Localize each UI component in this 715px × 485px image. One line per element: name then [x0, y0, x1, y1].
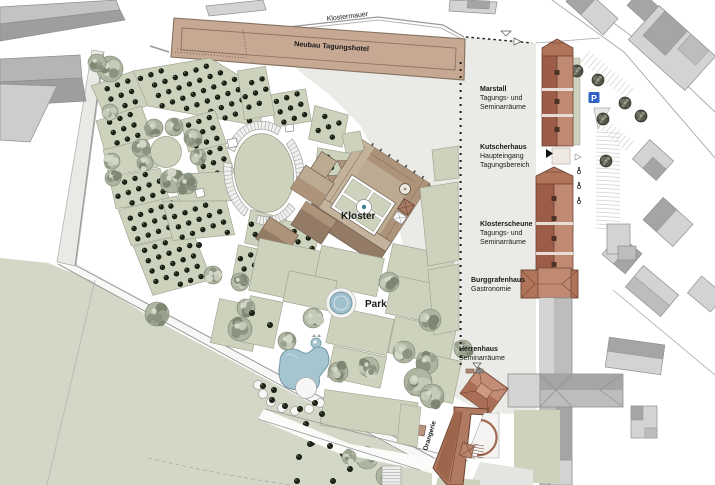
svg-text:Marstall: Marstall [480, 86, 507, 93]
svg-text:Klosterscheune: Klosterscheune [480, 221, 533, 228]
svg-text:Gastronomie: Gastronomie [471, 286, 511, 293]
svg-text:Seminarräume: Seminarräume [459, 355, 505, 362]
svg-text:Herrenhaus: Herrenhaus [459, 346, 498, 353]
svg-text:Burggrafenhaus: Burggrafenhaus [471, 277, 525, 284]
svg-text:Tagungs- und: Tagungs- und [480, 230, 523, 237]
svg-text:Kutscherhaus: Kutscherhaus [480, 144, 527, 151]
svg-text:Haupteingang: Haupteingang [480, 153, 524, 160]
svg-text:Seminarräume: Seminarräume [480, 239, 526, 246]
svg-text:Kloster: Kloster [341, 211, 376, 222]
svg-text:Park: Park [365, 299, 387, 310]
svg-text:P: P [591, 93, 597, 103]
svg-text:Tagungsbereich: Tagungsbereich [480, 162, 530, 169]
svg-text:Seminarräume: Seminarräume [480, 104, 526, 111]
svg-text:Tagungs- und: Tagungs- und [480, 95, 523, 102]
